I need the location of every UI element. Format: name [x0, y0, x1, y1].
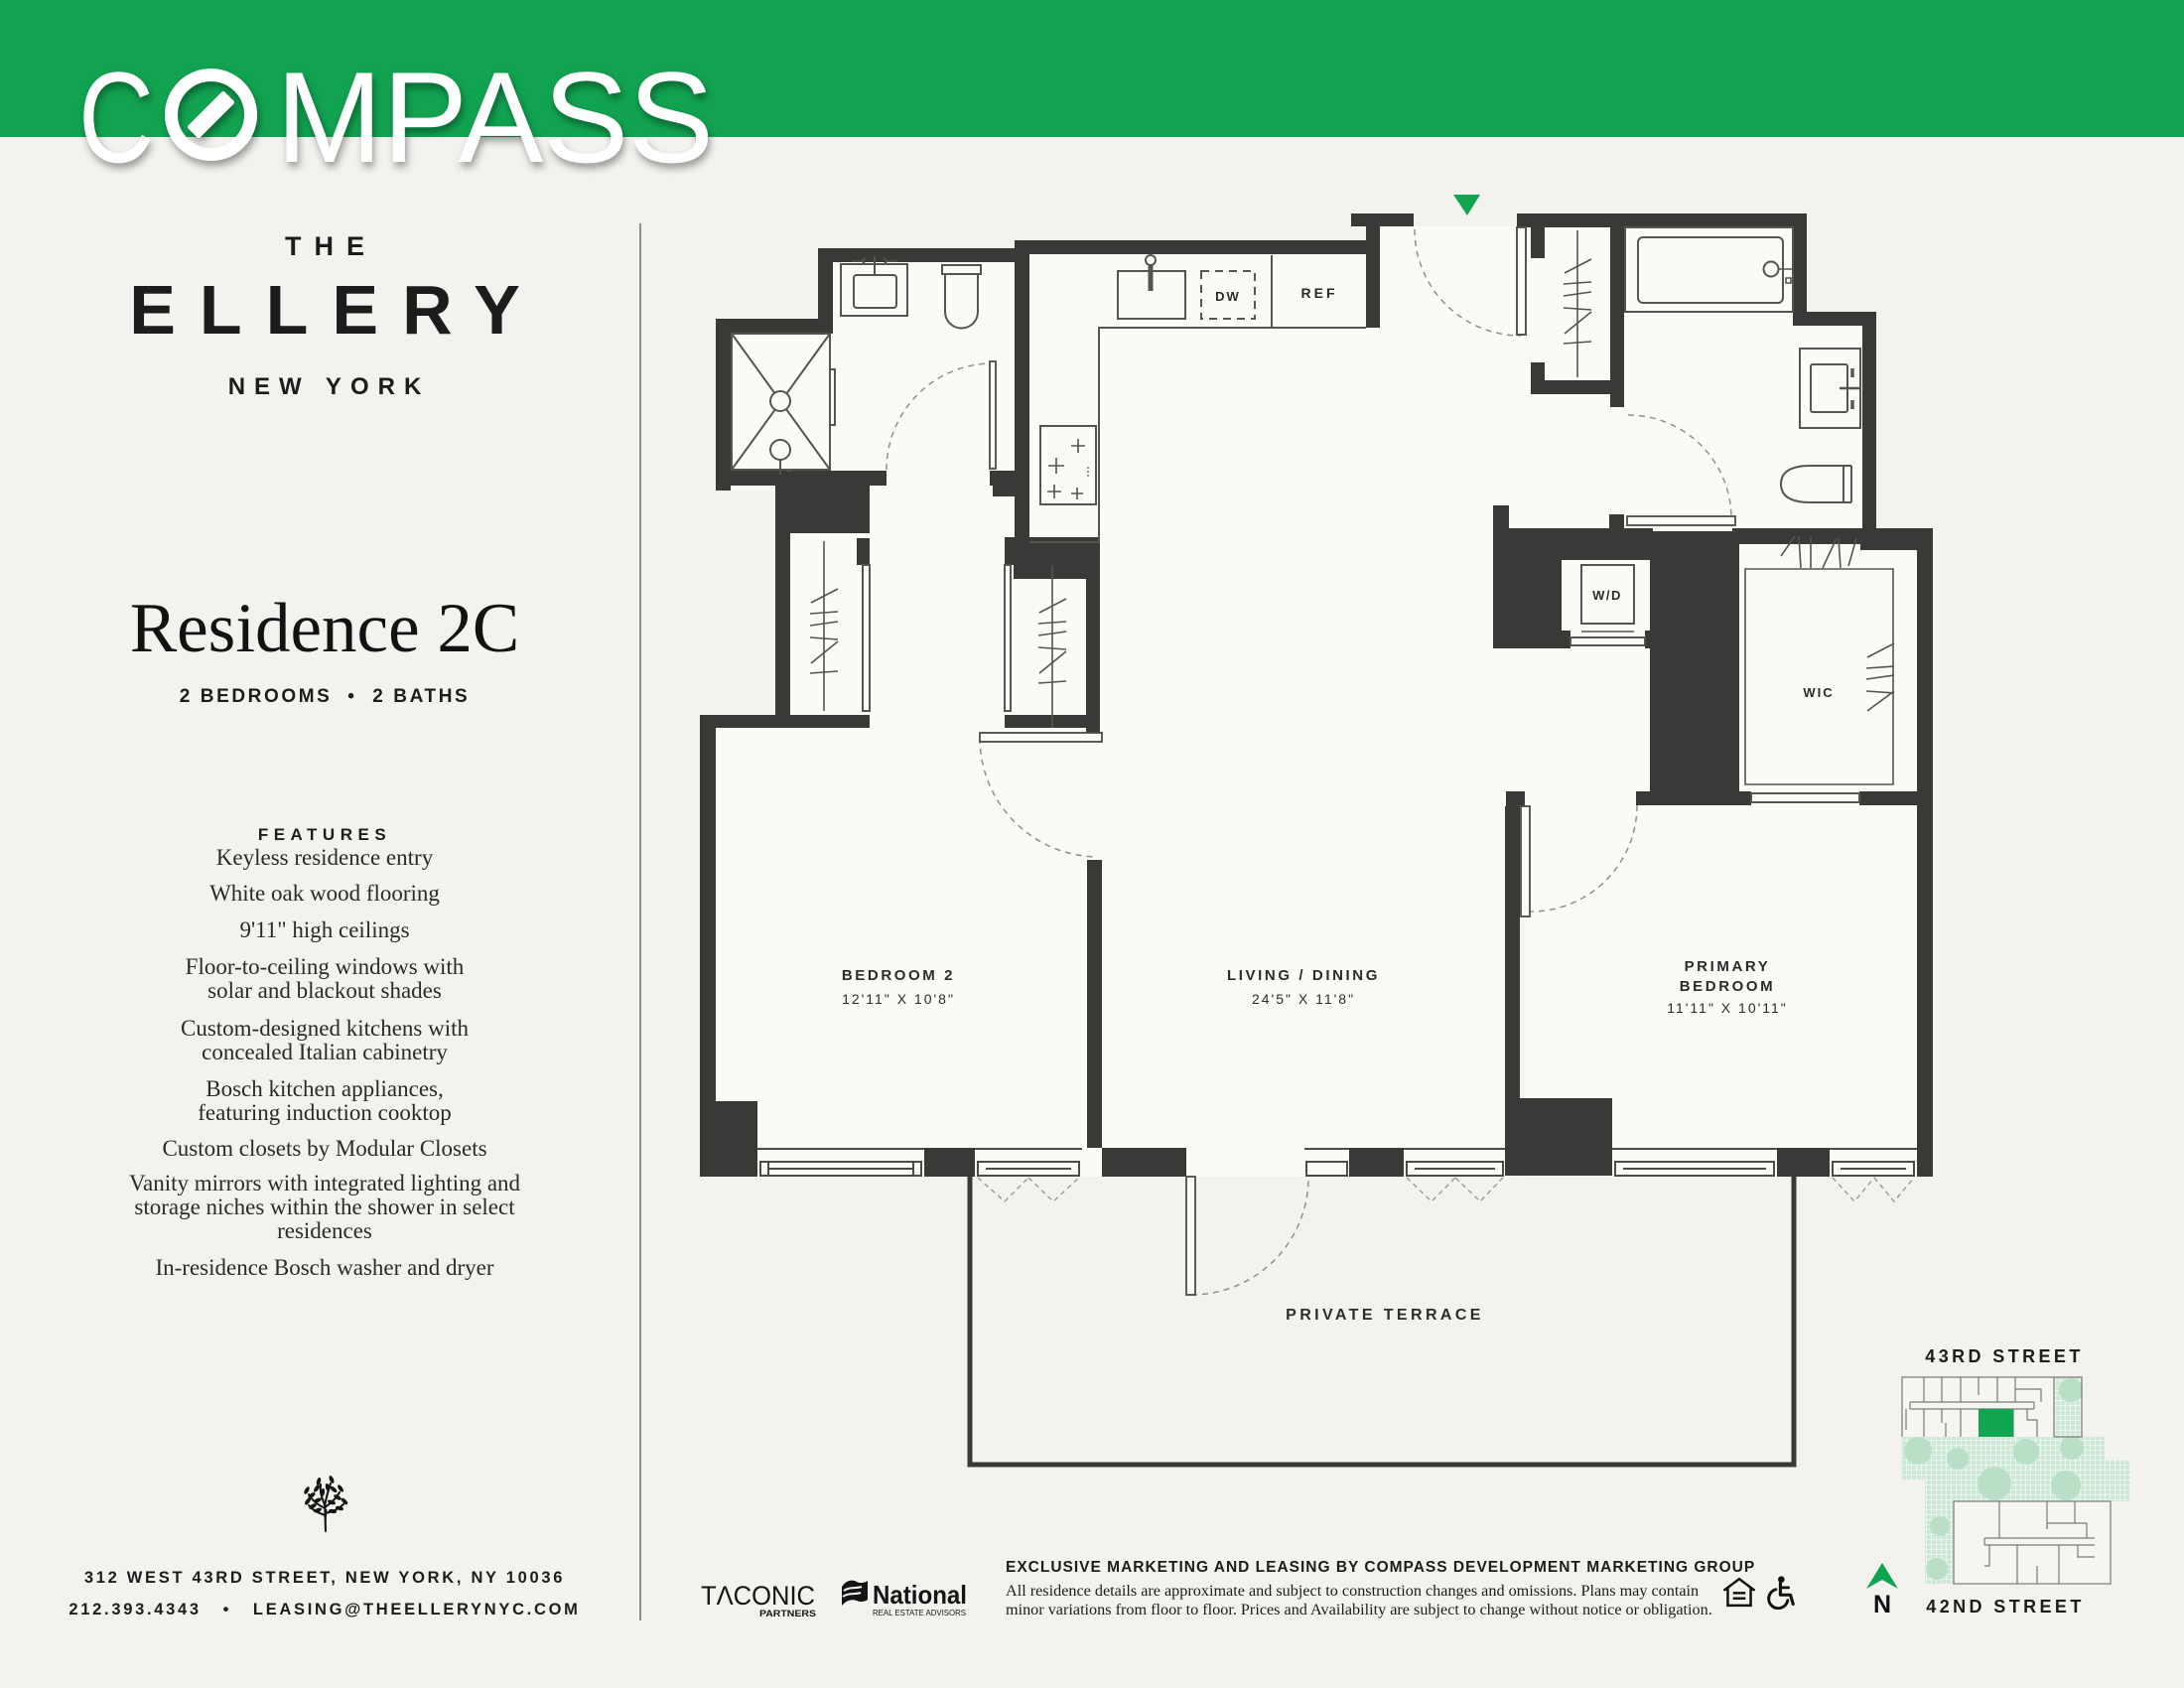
- svg-text:11'11" X 10'11": 11'11" X 10'11": [1667, 1000, 1788, 1016]
- svg-text:BEDROOM: BEDROOM: [1680, 978, 1776, 995]
- svg-text:24'5" X 11'8": 24'5" X 11'8": [1252, 991, 1355, 1007]
- svg-text:REF: REF: [1301, 285, 1338, 301]
- svg-text:LIVING / DINING: LIVING / DINING: [1227, 967, 1380, 984]
- svg-text:WIC: WIC: [1803, 685, 1834, 700]
- svg-text:PRIMARY: PRIMARY: [1685, 958, 1771, 975]
- svg-text:W/D: W/D: [1592, 588, 1622, 603]
- svg-text:PRIVATE TERRACE: PRIVATE TERRACE: [1286, 1307, 1484, 1324]
- svg-text:12'11" X 10'8": 12'11" X 10'8": [842, 991, 955, 1007]
- svg-text:BEDROOM 2: BEDROOM 2: [842, 967, 955, 984]
- svg-text:DW: DW: [1215, 289, 1241, 304]
